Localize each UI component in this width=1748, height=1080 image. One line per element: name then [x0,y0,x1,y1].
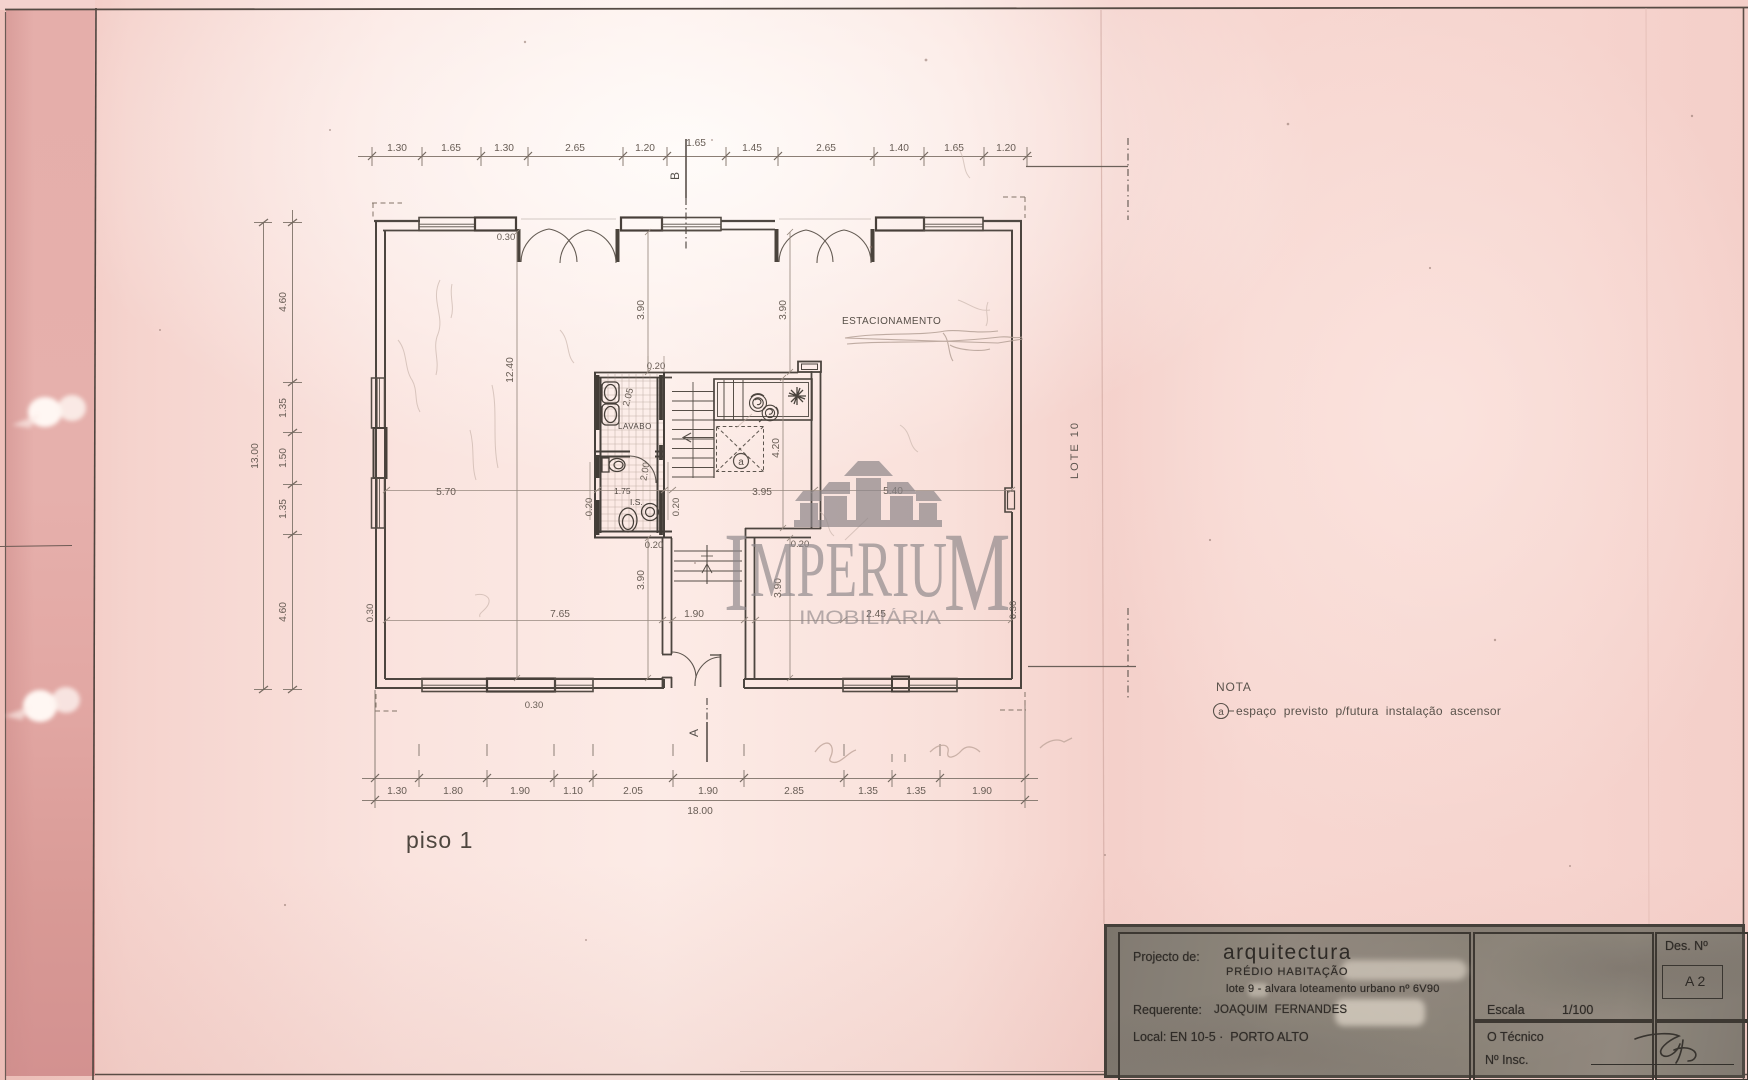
svg-text:1.50: 1.50 [278,448,289,468]
svg-text:espaço previsto p/futura in: espaço previsto p/futura instalação asce… [1236,704,1501,718]
svg-text:2.65: 2.65 [816,143,836,154]
svg-text:2.05: 2.05 [623,786,643,797]
svg-text:1.35: 1.35 [906,786,926,797]
svg-text:LAVABO: LAVABO [618,422,652,431]
svg-text:13.00: 13.00 [250,443,261,469]
svg-text:1.30: 1.30 [387,143,407,154]
svg-text:0.20: 0.20 [645,540,664,551]
svg-text:5.70: 5.70 [436,487,456,498]
svg-text:2.65: 2.65 [565,143,585,154]
svg-text:2.00: 2.00 [639,462,653,482]
svg-text:1.40: 1.40 [889,143,909,154]
svg-text:piso 1: piso 1 [406,827,473,853]
svg-text:3.90: 3.90 [636,570,647,590]
svg-text:A: A [687,729,701,737]
svg-text:1.30: 1.30 [494,143,514,154]
svg-text:1.65: 1.65 [441,143,461,154]
svg-text:1.80: 1.80 [443,786,463,797]
svg-text:1.30: 1.30 [387,786,407,797]
svg-text:1.35: 1.35 [858,786,878,797]
svg-text:1.65: 1.65 [944,143,964,154]
svg-text:18.00: 18.00 [687,806,713,817]
svg-text:0.20: 0.20 [671,498,682,517]
svg-text:ESTACIONAMENTO: ESTACIONAMENTO [842,316,941,327]
svg-text:4.20: 4.20 [771,438,782,458]
svg-text:0.30: 0.30 [497,232,516,243]
svg-text:1.90: 1.90 [510,786,530,797]
svg-text:1.90: 1.90 [684,609,704,620]
svg-text:1.65: 1.65 [686,138,706,149]
svg-text:2.85: 2.85 [784,786,804,797]
svg-text:3.90: 3.90 [778,300,789,320]
svg-text:a: a [738,457,744,468]
svg-text:1.35: 1.35 [278,398,289,418]
svg-text:1.45: 1.45 [742,143,762,154]
svg-text:IMOBILIÁRIA: IMOBILIÁRIA [799,608,941,629]
svg-text:7.65: 7.65 [550,609,570,620]
svg-text:1.20: 1.20 [635,143,655,154]
svg-text:I: I [724,510,749,635]
svg-text:I.S.: I.S. [630,497,643,507]
svg-text:1.90: 1.90 [972,786,992,797]
svg-text:0.30: 0.30 [365,604,376,623]
svg-text:1.10: 1.10 [563,786,583,797]
svg-text:LOTE 10: LOTE 10 [1069,421,1081,479]
svg-text:0.30: 0.30 [525,700,544,711]
svg-text:4.60: 4.60 [278,292,289,312]
svg-text:1.90: 1.90 [698,786,718,797]
svg-text:1.20: 1.20 [996,143,1016,154]
svg-text:1.75: 1.75 [614,486,631,496]
svg-text:1.35: 1.35 [278,499,289,519]
svg-text:M: M [944,510,1010,635]
svg-text:MPERIU: MPERIU [750,526,947,613]
svg-text:NOTA: NOTA [1216,680,1252,694]
svg-text:2.05: 2.05 [621,387,636,408]
svg-text:12.40: 12.40 [505,357,516,383]
svg-text:3.95: 3.95 [752,487,772,498]
svg-text:a: a [1218,707,1224,718]
svg-text:B: B [668,172,682,180]
svg-text:3.90: 3.90 [636,300,647,320]
svg-text:0.20: 0.20 [584,498,595,517]
svg-text:4.60: 4.60 [278,602,289,622]
svg-text:0.20: 0.20 [647,361,666,372]
